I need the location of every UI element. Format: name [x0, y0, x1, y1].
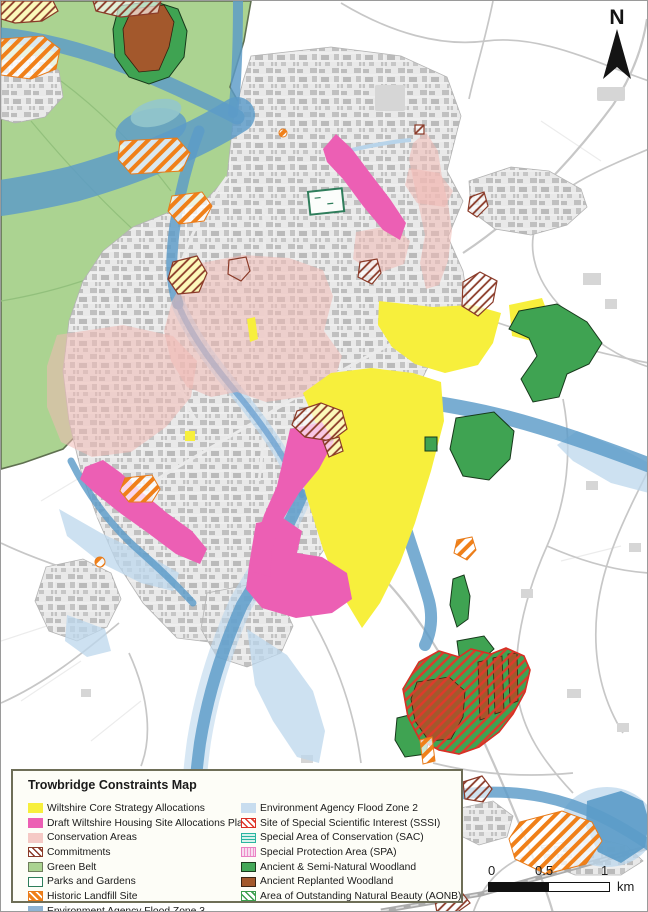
- scale-tick-0-5: 0.5: [535, 863, 553, 878]
- trowbridge-constraints-map-page: N 0 0.5 1 km Trowbridge Constraints Map …: [0, 0, 648, 912]
- legend-left-column: Wiltshire Core Strategy Allocations Draf…: [28, 801, 248, 912]
- swatch-flood-zone-3: [28, 906, 43, 912]
- north-arrow-icon: [602, 29, 632, 81]
- legend-item-commitments: Commitments: [28, 845, 248, 860]
- scale-unit: km: [617, 879, 634, 894]
- legend-title: Trowbridge Constraints Map: [28, 778, 452, 792]
- swatch-green-belt: [28, 862, 43, 872]
- north-arrow: N: [595, 7, 639, 86]
- legend-item-ancient-woodland: Ancient & Semi-Natural Woodland: [241, 860, 461, 875]
- legend-item-housing-allocations: Draft Wiltshire Housing Site Allocations…: [28, 816, 248, 831]
- legend-item-spa: Special Protection Area (SPA): [241, 845, 461, 860]
- legend-item-replanted-woodland: Ancient Replanted Woodland: [241, 874, 461, 889]
- swatch-core-strategy-allocations: [28, 803, 43, 813]
- legend-item-aonb: Area of Outstanding Natural Beauty (AONB…: [241, 889, 461, 904]
- legend-item-parks-and-gardens: Parks and Gardens: [28, 874, 248, 889]
- legend-item-sac: Special Area of Conservation (SAC): [241, 830, 461, 845]
- swatch-aonb: [241, 891, 256, 901]
- scale-tick-1: 1: [601, 863, 608, 878]
- swatch-replanted-woodland: [241, 877, 256, 887]
- north-label: N: [595, 7, 639, 29]
- swatch-housing-allocations: [28, 818, 43, 828]
- scale-bar-graphic: [488, 882, 610, 892]
- swatch-spa: [241, 847, 256, 857]
- swatch-commitments: [28, 847, 43, 857]
- legend-item-core-strategy-allocations: Wiltshire Core Strategy Allocations: [28, 801, 248, 816]
- swatch-historic-landfill: [28, 891, 43, 901]
- swatch-parks-and-gardens: [28, 877, 43, 887]
- parks-and-gardens-area: [308, 188, 344, 214]
- swatch-conservation-areas: [28, 833, 43, 843]
- legend-item-green-belt: Green Belt: [28, 860, 248, 875]
- legend-item-historic-landfill: Historic Landfill Site: [28, 889, 248, 904]
- swatch-sac: [241, 833, 256, 843]
- swatch-sssi: [241, 818, 256, 828]
- swatch-flood-zone-2: [241, 803, 256, 813]
- legend-item-flood-zone-2: Environment Agency Flood Zone 2: [241, 801, 461, 816]
- map-legend: Trowbridge Constraints Map Wiltshire Cor…: [11, 769, 463, 903]
- legend-item-flood-zone-3: Environment Agency Flood Zone 3: [28, 904, 248, 912]
- legend-item-conservation-areas: Conservation Areas: [28, 830, 248, 845]
- swatch-ancient-woodland: [241, 862, 256, 872]
- legend-item-sssi: Site of Special Scientific Interest (SSS…: [241, 816, 461, 831]
- scale-bar: 0 0.5 1 km: [479, 863, 647, 903]
- scale-tick-0: 0: [488, 863, 495, 878]
- legend-right-column: Environment Agency Flood Zone 2 Site of …: [241, 801, 461, 904]
